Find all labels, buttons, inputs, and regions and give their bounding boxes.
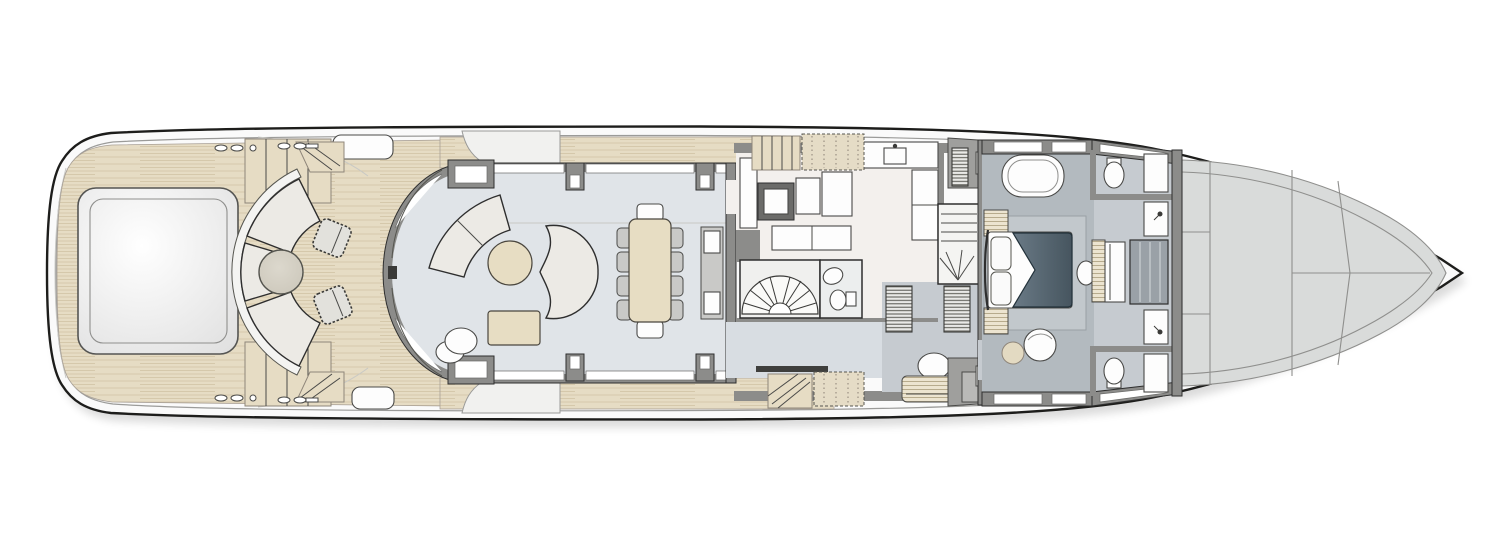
deck-locker-bottom [352,387,394,409]
tender-hatch [78,188,238,354]
salon-window [716,371,726,380]
master-pouf-small [1002,342,1024,364]
day-head [820,260,862,318]
dining-table [629,219,671,322]
aft-round-table [259,250,303,294]
wing-ladder-top [952,148,968,186]
companionway-stairs [938,204,980,284]
deck-plan-canvas [0,0,1500,544]
boarding-steps-bottom [768,374,812,408]
bathtub [1002,155,1064,197]
dining-console [701,227,723,319]
dayhead-toilet [830,290,846,310]
foredeck [1182,160,1446,386]
sink-top [1144,202,1168,236]
sink-bottom [1144,310,1168,344]
salon-window [586,164,694,173]
door-track [756,366,828,372]
salon-window [488,164,564,173]
salon [383,160,734,384]
master-pouf [1024,329,1056,361]
salon-galley-door [726,180,736,214]
master-stateroom [978,140,1182,406]
wardrobe-right [944,286,970,332]
salon-window [586,371,694,380]
forward-bulkhead [1172,150,1182,396]
dayhead-tank [846,292,856,306]
dining-chair-foot [637,321,663,338]
master-vanity [1092,240,1125,302]
central-shower [1130,240,1168,304]
nightstand-bottom [984,308,1008,334]
yacht-deck-plan [0,0,1500,544]
king-bed [985,230,1072,310]
fan-staircase [740,260,820,318]
toilet-bottom [1104,358,1124,384]
boarding-steps-top [752,136,800,170]
shower-bottom [1144,354,1168,392]
salon-window [716,164,726,173]
wardrobe-left [886,286,912,332]
dotted-pad-top [802,134,864,170]
galley-foyer [726,134,1008,408]
shower-top [1144,154,1168,192]
salon-round-table [488,241,532,285]
toilet-top [1104,162,1124,188]
door-handle [388,266,397,279]
salon-window [488,371,564,380]
dumbwaiter [758,183,794,220]
dotted-pad-bottom [814,372,864,406]
salon-coffee-table [488,311,540,345]
